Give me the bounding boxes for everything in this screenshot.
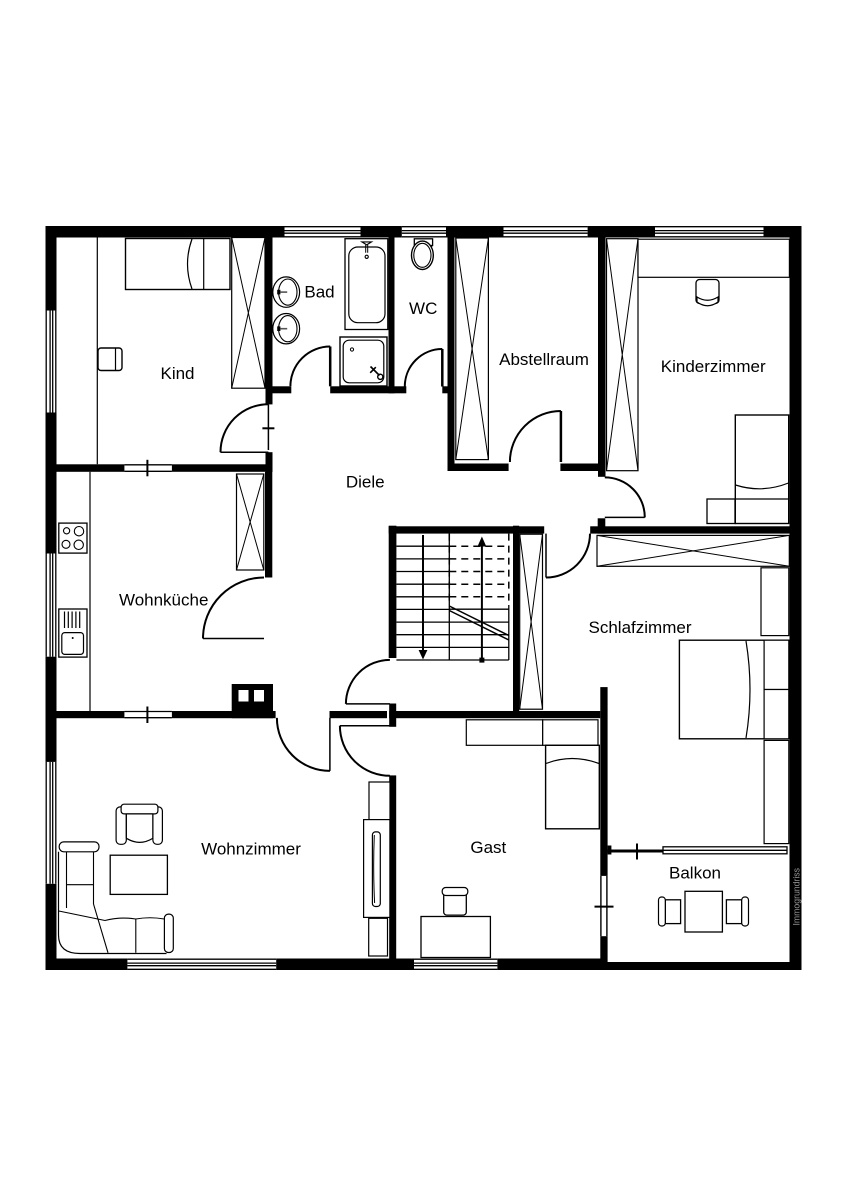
svg-text:Diele: Diele xyxy=(346,473,385,492)
svg-text:Wohnzimmer: Wohnzimmer xyxy=(201,839,301,858)
svg-text:Kind: Kind xyxy=(160,364,194,383)
svg-text:Balkon: Balkon xyxy=(669,863,721,882)
svg-text:Abstellraum: Abstellraum xyxy=(499,350,589,369)
svg-text:Schlafzimmer: Schlafzimmer xyxy=(589,618,692,637)
svg-text:Gast: Gast xyxy=(470,838,506,857)
svg-text:Kinderzimmer: Kinderzimmer xyxy=(661,357,766,376)
svg-text:Wohnküche: Wohnküche xyxy=(119,591,208,610)
svg-text:WC: WC xyxy=(409,299,437,318)
svg-text:Bad: Bad xyxy=(304,283,334,302)
svg-text:Immogrundriss: Immogrundriss xyxy=(792,868,802,926)
